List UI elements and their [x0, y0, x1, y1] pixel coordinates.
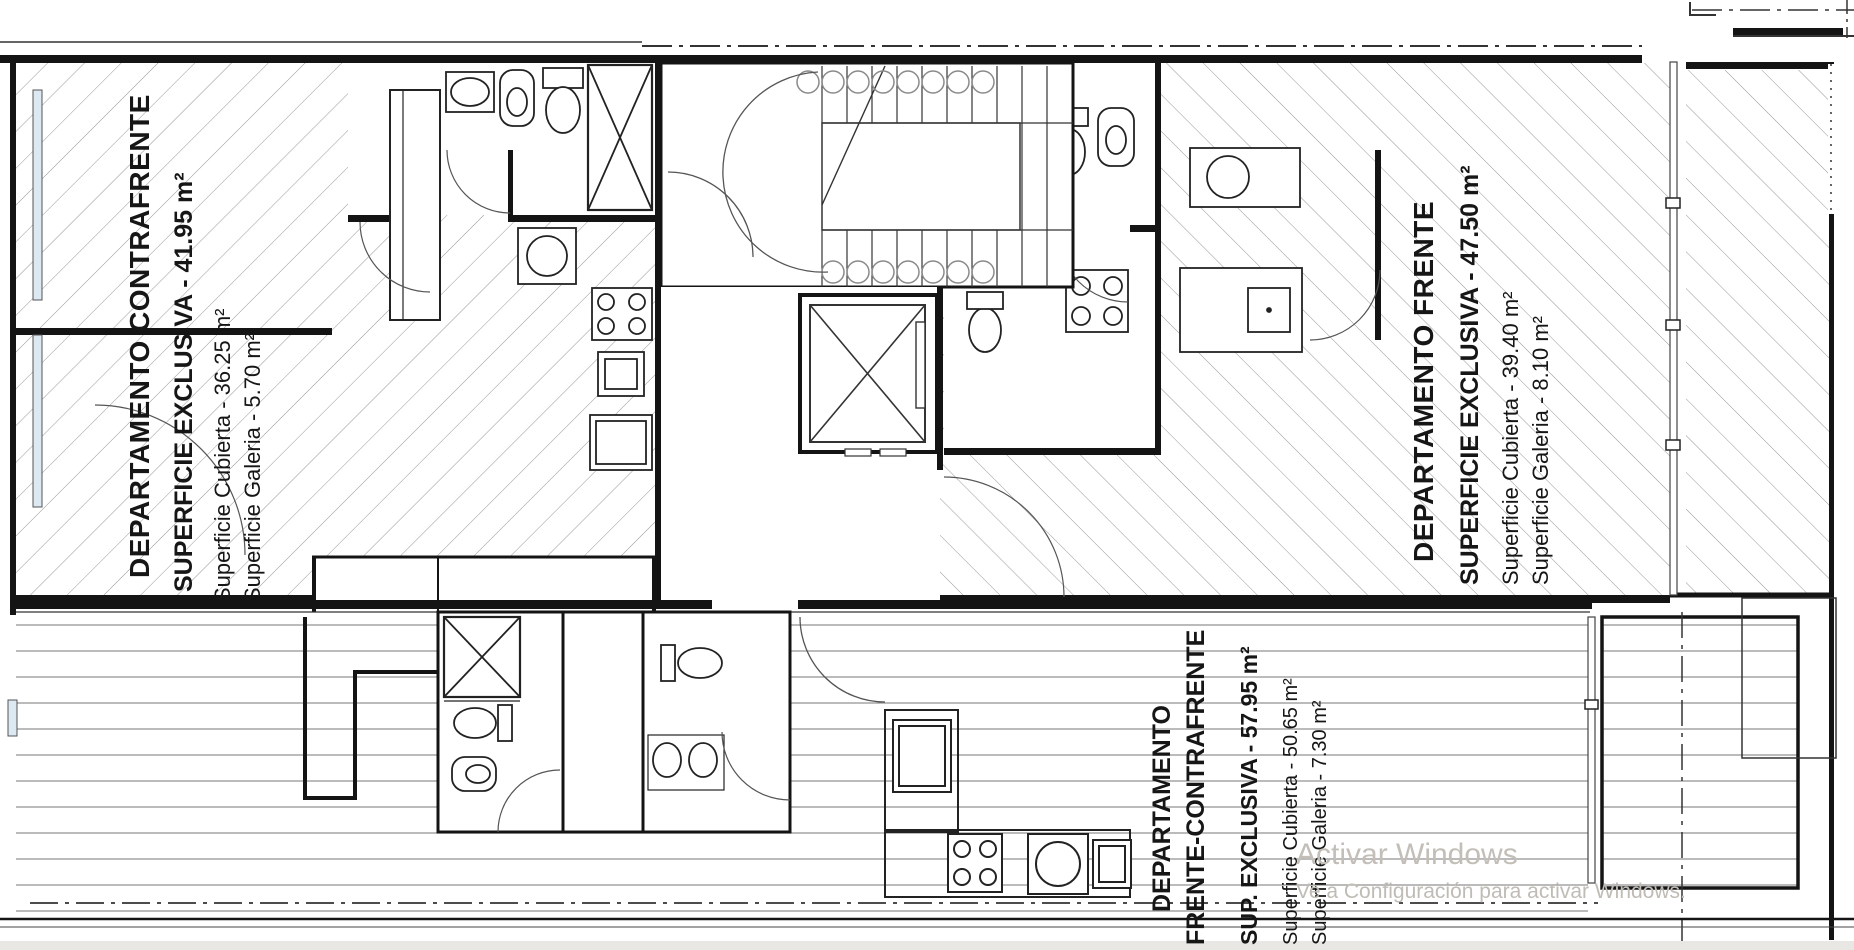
elevator [800, 295, 937, 456]
kitchen-sink-icon [1093, 840, 1131, 888]
fridge-icon [590, 415, 652, 470]
toilet-icon [543, 68, 583, 133]
kitchen-sink-icon [598, 352, 644, 396]
frente-cubierta: Superficie Cubierta - 39.40 m² [1500, 292, 1522, 585]
frente-contrafrente-cubierta: Superficie Cubierta - 50.65 m² [1281, 678, 1301, 945]
apartment-frente-contrafrente [8, 600, 1798, 918]
contrafrente-exclusiva: SUPERFICIE EXCLUSIVA - 41.95 m² [172, 172, 197, 592]
toilet-icon [454, 705, 512, 741]
hall-corridor [661, 287, 937, 612]
sink-icon [446, 72, 494, 112]
toilet-icon [967, 292, 1003, 352]
bottom-bathrooms [438, 612, 790, 832]
top-wall [0, 55, 1642, 63]
frente-galeria: Superficie Galeria - 8.10 m² [1530, 316, 1552, 585]
frente-contrafrente-exclusiva: SUP. EXCLUSIVA - 57.95 m² [1238, 646, 1261, 945]
apartment-contrafrente [10, 55, 661, 615]
elevator-door [916, 322, 925, 408]
contrafrente-title: DEPARTAMENTO CONTRAFRENTE [126, 94, 154, 578]
vanity-sink-icon [1190, 148, 1300, 207]
floor-plan-screenshot: DEPARTAMENTO CONTRAFRENTE SUPERFICIE EXC… [0, 0, 1854, 950]
stove-icon [592, 288, 652, 340]
frente-contrafrente-title-2: FRENTE-CONTRAFRENTE [1184, 630, 1209, 945]
frente-contrafrente-galeria: Superficie Galeria - 7.30 m² [1310, 700, 1330, 945]
bidet-icon [452, 757, 496, 791]
stair-core [661, 63, 1073, 287]
window-icon [33, 90, 42, 507]
shower-icon [444, 617, 520, 701]
round-sink-icon [1028, 834, 1088, 894]
site-boundary-lines [0, 0, 1854, 46]
frente-title: DEPARTAMENTO FRENTE [1410, 201, 1438, 562]
toilet-icon [661, 645, 722, 681]
contrafrente-galeria: Superficie Galeria - 5.70 m² [242, 333, 264, 602]
contrafrente-cubierta: Superficie Cubierta - 36.25 m² [212, 309, 234, 602]
fridge-icon [893, 720, 951, 792]
bidet-icon [500, 70, 534, 126]
window-icon [8, 700, 17, 736]
frente-exclusiva: SUPERFICIE EXCLUSIVA - 47.50 m² [1458, 165, 1483, 585]
wardrobe-icon [390, 90, 440, 320]
deck-floor [16, 614, 1588, 918]
washer-icon [518, 228, 576, 284]
bidet-icon [1098, 108, 1134, 166]
frente-contrafrente-title-1: DEPARTAMENTO [1150, 705, 1175, 912]
stove-icon [948, 834, 1002, 892]
shower-icon [588, 65, 652, 210]
kitchen-sink-icon [1248, 288, 1290, 332]
bottom-galeria [1585, 617, 1798, 888]
floor-plan-drawing [0, 0, 1854, 950]
